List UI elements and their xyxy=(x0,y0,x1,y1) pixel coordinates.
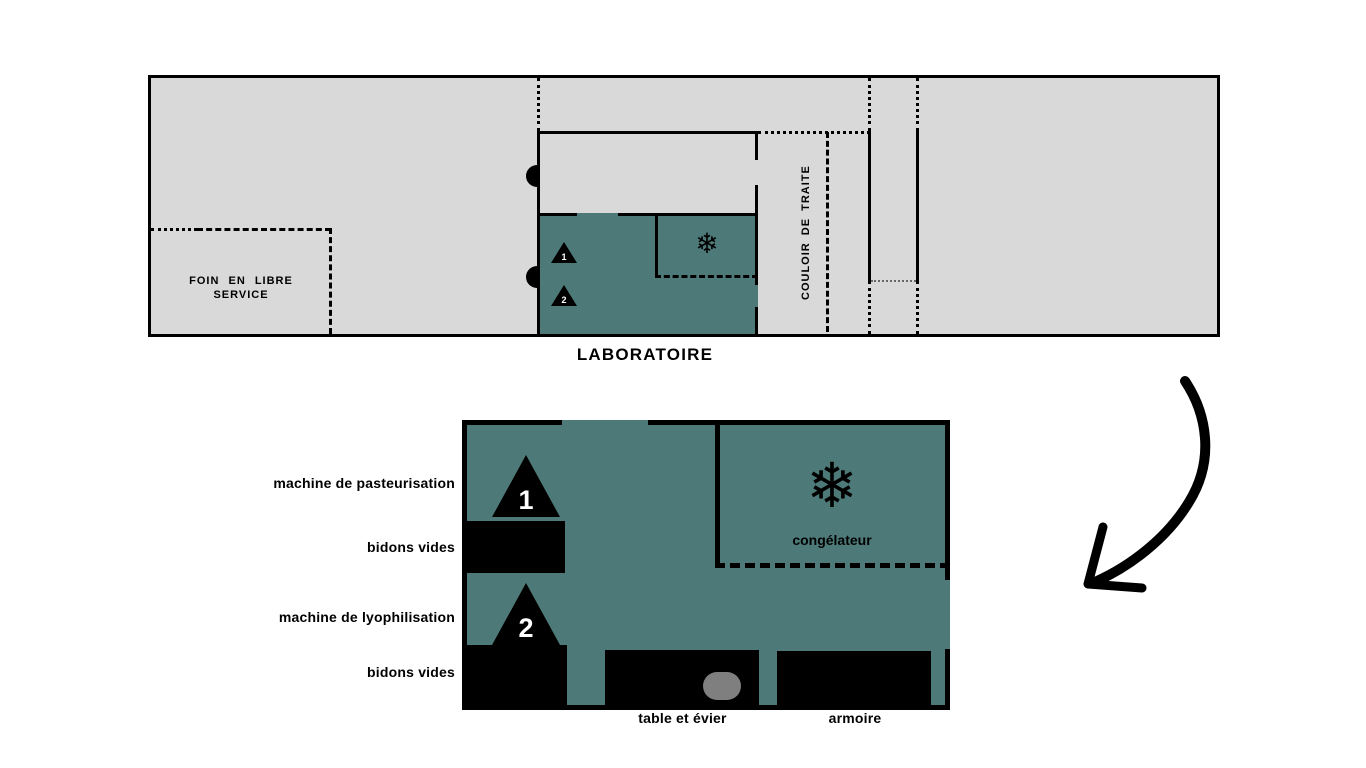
passage-dotted-top xyxy=(868,78,871,131)
equipment-marker-2: 2 xyxy=(551,285,577,306)
hay-boundary-dotted xyxy=(151,228,197,231)
door-knob-icon xyxy=(526,266,537,288)
lab-right-wall-c xyxy=(755,307,758,334)
detail-top-wall-a xyxy=(462,420,562,425)
cabinet-block xyxy=(777,651,931,705)
detail-right-wall-a xyxy=(945,420,950,580)
passage-dotted-bottom xyxy=(916,281,919,334)
lab-room-top-wall-a xyxy=(537,213,577,216)
label-empty-cans-2: bidons vides xyxy=(205,664,455,680)
passage-wall-right xyxy=(916,131,919,281)
label-cabinet: armoire xyxy=(775,710,935,726)
corridor-dashed-wall xyxy=(826,132,829,332)
freezer-dashed-line xyxy=(655,275,758,278)
freezer-room-dashed-line xyxy=(715,563,950,568)
freezer-label: congélateur xyxy=(752,532,912,548)
marker-number: 1 xyxy=(551,252,577,262)
snowflake-icon: ❄ xyxy=(688,228,726,260)
detail-top-wall-b xyxy=(648,420,950,425)
barn-floor-plan: FOIN EN LIBRE SERVICE ❄ 1 2 COULOIR DE T… xyxy=(148,75,1220,337)
marker-number: 2 xyxy=(492,614,560,642)
marker-number: 2 xyxy=(551,295,577,305)
laboratory-detail-plan: ❄ congélateur 1 2 xyxy=(462,420,950,710)
corridor-dotted-top xyxy=(758,131,870,134)
label-table-sink: table et évier xyxy=(600,710,765,726)
laboratory-title: LABORATOIRE xyxy=(560,345,730,365)
passage-wall-left xyxy=(868,131,871,281)
freezer-room-wall xyxy=(715,420,720,568)
hay-boundary-dashed-side xyxy=(329,228,332,334)
lab-room-top-wall-b xyxy=(618,213,758,216)
freezer-wall xyxy=(655,216,658,276)
lab-top-wall xyxy=(537,131,758,134)
lab-right-wall-a xyxy=(755,131,758,160)
label-empty-cans-1: bidons vides xyxy=(205,539,455,555)
passage-dotted-bottom xyxy=(868,281,871,334)
detail-right-wall-b xyxy=(945,649,950,710)
zoom-arrow-icon xyxy=(1050,358,1260,603)
canvas: FOIN EN LIBRE SERVICE ❄ 1 2 COULOIR DE T… xyxy=(0,0,1366,768)
label-lyophilization: machine de lyophilisation xyxy=(205,609,455,625)
label-pasteurization: machine de pasteurisation xyxy=(205,475,455,491)
empty-cans-block-2 xyxy=(462,645,567,707)
sink-oval xyxy=(703,672,741,700)
passage-thin-connector xyxy=(871,280,916,282)
door-knob-icon xyxy=(526,165,537,187)
marker-number: 1 xyxy=(492,486,560,514)
pasteurization-marker: 1 xyxy=(492,455,560,517)
lab-right-wall-b xyxy=(755,185,758,285)
empty-cans-block-1 xyxy=(462,521,565,573)
hay-boundary-dashed-top xyxy=(197,228,331,231)
lyophilization-marker: 2 xyxy=(492,583,560,645)
hay-area-label: FOIN EN LIBRE SERVICE xyxy=(159,274,323,302)
snowflake-icon: ❄ xyxy=(792,448,872,526)
passage-dotted-top xyxy=(916,78,919,131)
milking-corridor-label: COULOIR DE TRAITE xyxy=(800,163,824,303)
equipment-marker-1: 1 xyxy=(551,242,577,263)
wall-dotted-stub xyxy=(537,78,540,131)
